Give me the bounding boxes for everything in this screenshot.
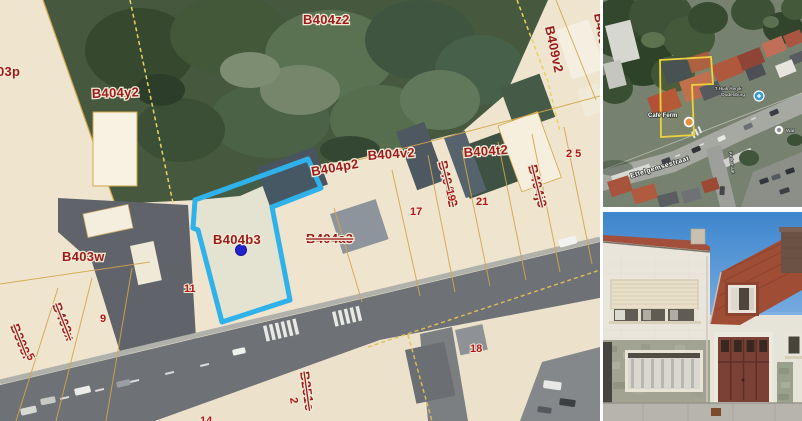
- garage-door: [714, 332, 773, 404]
- lower-window: [625, 350, 703, 392]
- poi-label-line1[interactable]: 't Huis Aeryk: [715, 86, 742, 92]
- poi-label-line2: Oudenburg: [721, 92, 745, 98]
- parcel-label: B404t2: [463, 142, 508, 160]
- left-house: [603, 229, 710, 403]
- street-photo-panel[interactable]: [603, 212, 802, 421]
- poi-label-partial[interactable]: Wal: [786, 128, 794, 134]
- stone-pillar: [777, 362, 793, 403]
- dormer-window: [725, 282, 759, 316]
- right-window: [789, 337, 800, 354]
- parcel-label: B404y2: [92, 84, 140, 101]
- house-number: 14: [200, 415, 213, 421]
- house-number: 17: [410, 206, 422, 218]
- house-number: 18: [470, 343, 482, 355]
- health-marker-icon[interactable]: [754, 91, 764, 101]
- parcel-label: B404a3: [306, 231, 353, 246]
- cadastral-map-panel[interactable]: 03p B404y2 B404z2 B409v2 B409c B404p2 B4…: [0, 0, 600, 421]
- selected-parcel-label: B404b3: [213, 232, 261, 247]
- house-number: 21: [476, 196, 488, 208]
- street-photo[interactable]: [603, 212, 802, 421]
- aerial-photo[interactable]: Café Ferm 't Huis Aeryk Oudenburg Wal Et…: [603, 0, 802, 207]
- house-number: 25: [566, 148, 584, 160]
- chimney: [781, 229, 802, 273]
- screenshot-root: 03p B404y2 B404z2 B409v2 B409c B404p2 B4…: [0, 0, 802, 421]
- cafe-label[interactable]: Café Ferm: [648, 113, 677, 119]
- parcel-label: B404z2: [303, 12, 350, 27]
- parcel-label: 03p: [0, 64, 20, 79]
- cafe-marker-icon[interactable]: [684, 117, 695, 128]
- cadastral-map[interactable]: 03p B404y2 B404z2 B409v2 B409c B404p2 B4…: [0, 0, 600, 421]
- parcel-label: B403w: [62, 249, 105, 264]
- house-number: 9: [100, 313, 106, 325]
- shop-marker-icon[interactable]: [775, 126, 784, 135]
- aerial-photo-panel[interactable]: Café Ferm 't Huis Aeryk Oudenburg Wal Et…: [603, 0, 802, 207]
- house-number: 11: [184, 283, 196, 295]
- sidewalk-object: [711, 408, 721, 416]
- sidewalk: [603, 403, 802, 421]
- side-passage: [603, 342, 612, 403]
